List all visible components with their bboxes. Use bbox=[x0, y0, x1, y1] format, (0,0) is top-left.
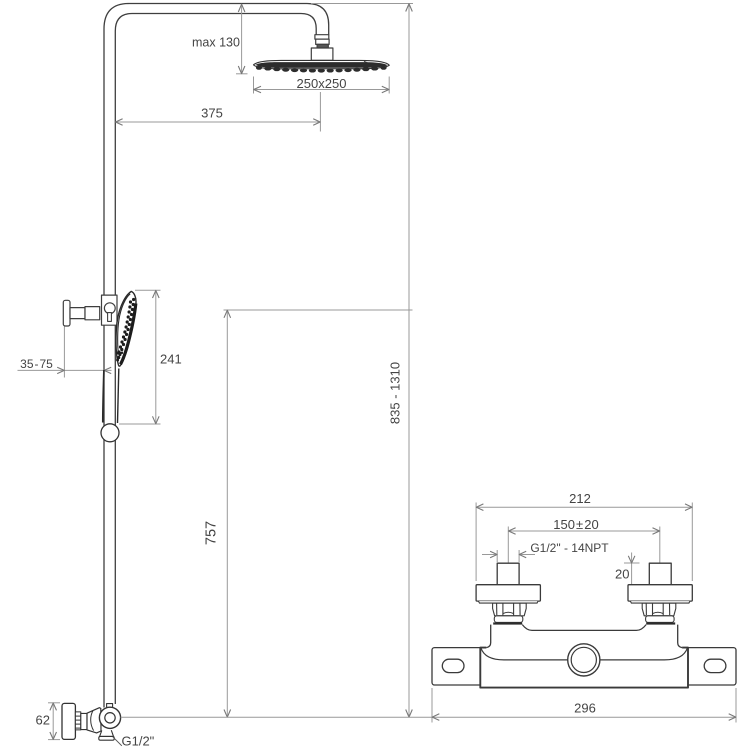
svg-text:250x250: 250x250 bbox=[297, 76, 347, 91]
svg-text:212: 212 bbox=[569, 491, 591, 506]
svg-text:62: 62 bbox=[36, 713, 50, 728]
svg-text:max 130: max 130 bbox=[192, 36, 240, 50]
svg-text:241: 241 bbox=[160, 352, 182, 367]
svg-text:757: 757 bbox=[204, 521, 220, 545]
svg-text:20: 20 bbox=[615, 567, 629, 582]
svg-text:35 - 75: 35 - 75 bbox=[20, 357, 53, 371]
svg-text:G1/2": G1/2" bbox=[122, 734, 155, 749]
svg-text:835 - 1310: 835 - 1310 bbox=[388, 362, 403, 424]
svg-text:150 ± 20: 150 ± 20 bbox=[553, 517, 598, 532]
svg-text:296: 296 bbox=[574, 701, 596, 716]
svg-text:375: 375 bbox=[201, 106, 223, 121]
svg-text:G1/2" - 14NPT: G1/2" - 14NPT bbox=[530, 541, 609, 555]
